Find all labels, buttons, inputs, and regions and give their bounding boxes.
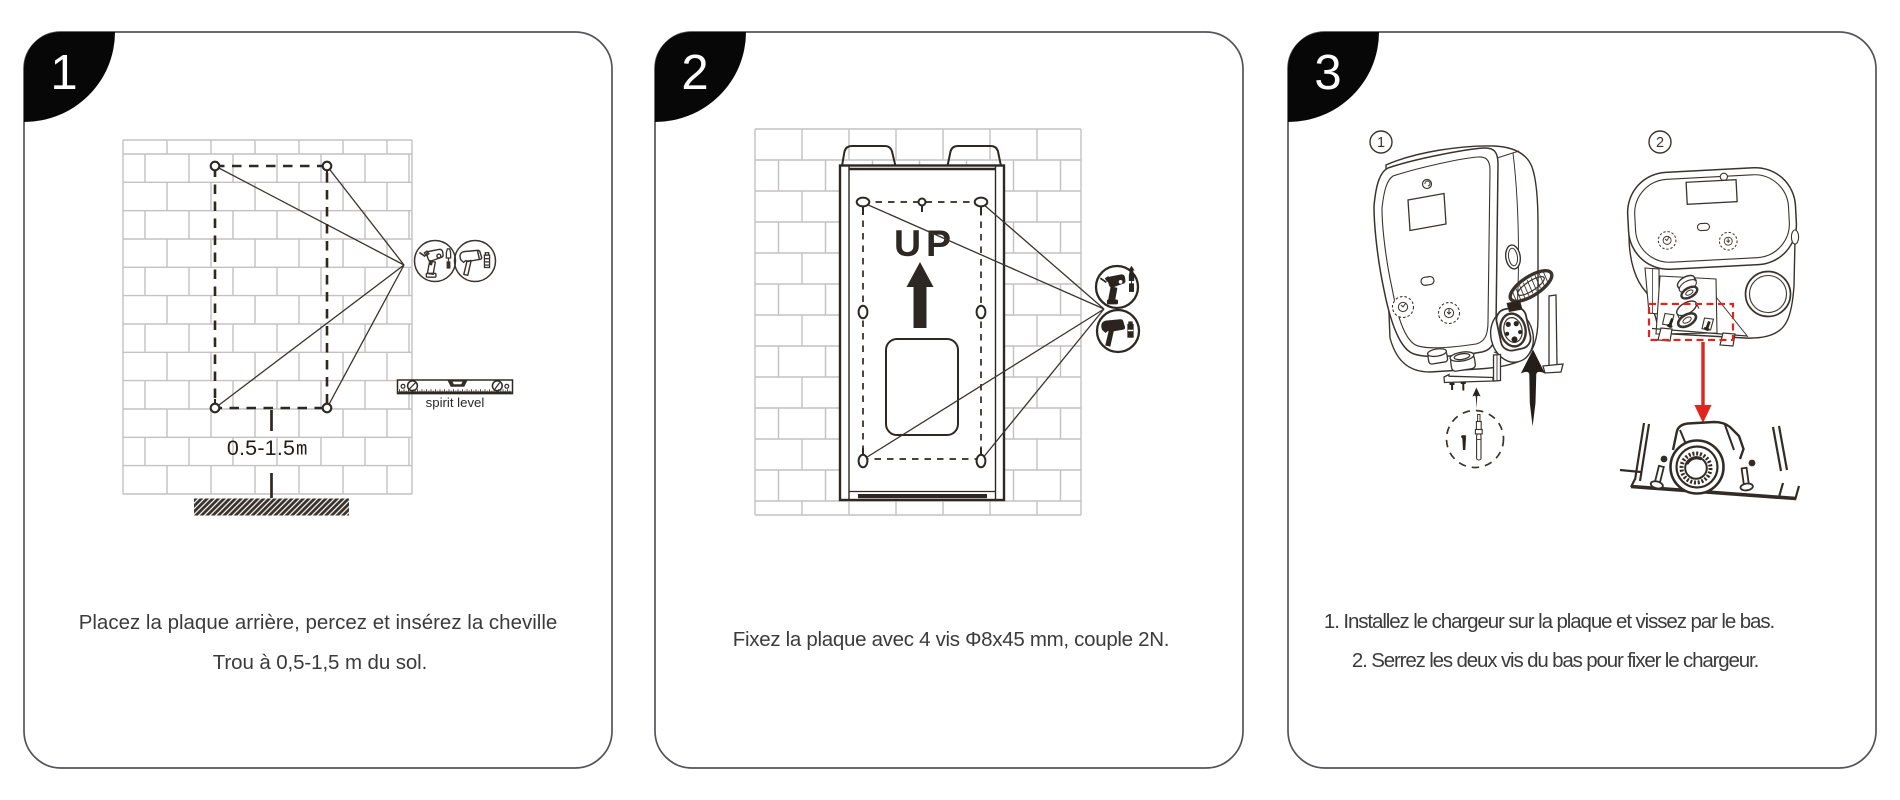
svg-text:m: m [296, 439, 307, 461]
svg-text:2: 2 [1656, 135, 1664, 151]
svg-text:1: 1 [1377, 135, 1385, 151]
svg-text:spirit level: spirit level [426, 395, 485, 410]
svg-text:UP: UP [894, 222, 956, 264]
svg-text:0.5-1.5: 0.5-1.5 [227, 436, 295, 460]
